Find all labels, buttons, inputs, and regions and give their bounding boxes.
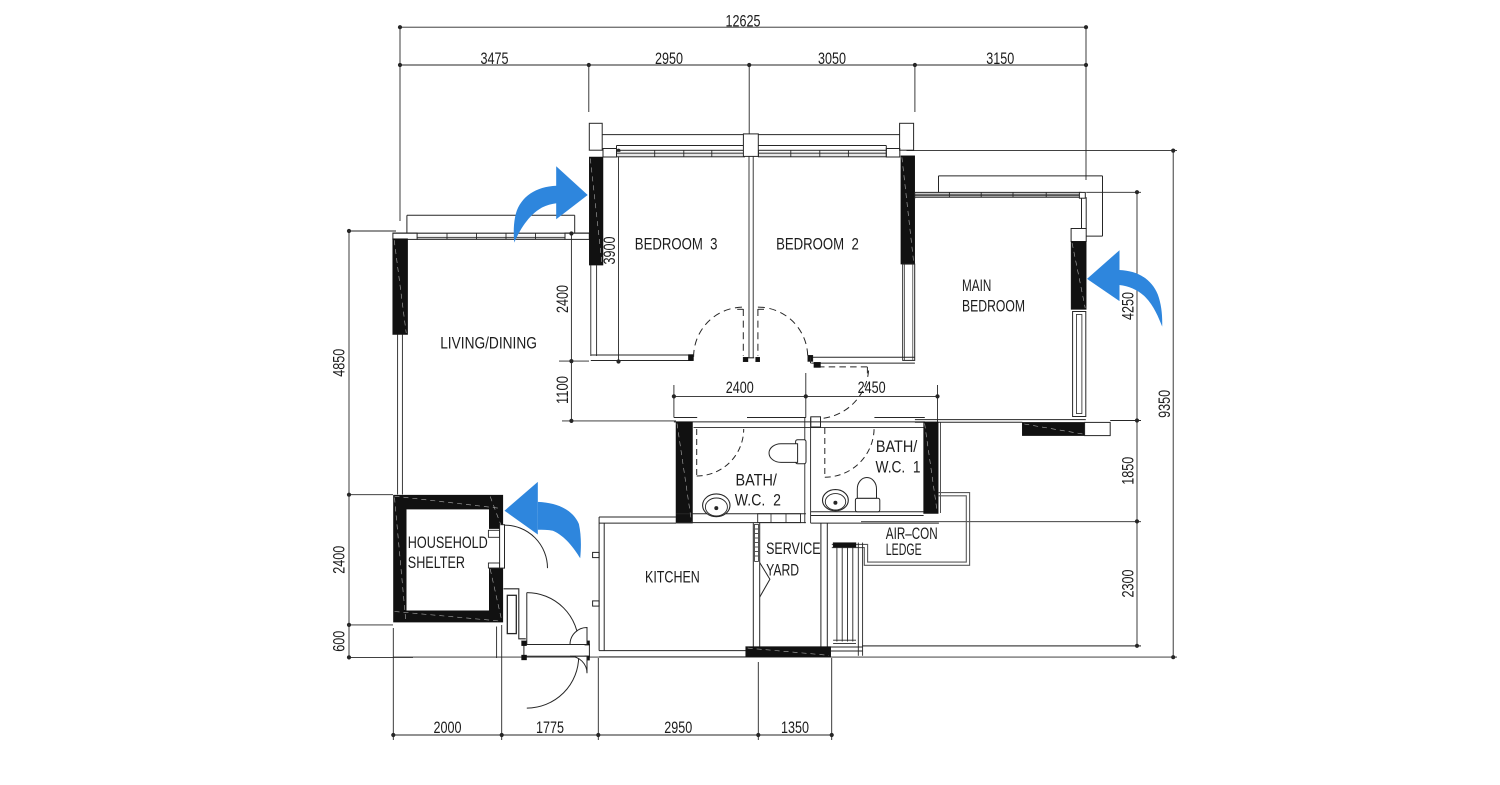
svg-text:BEDROOM 2: BEDROOM 2 bbox=[776, 235, 859, 253]
svg-text:3050: 3050 bbox=[818, 50, 846, 68]
svg-text:2400: 2400 bbox=[331, 546, 349, 574]
svg-text:W.C. 1: W.C. 1 bbox=[876, 459, 921, 477]
svg-text:HOUSEHOLD: HOUSEHOLD bbox=[408, 534, 488, 552]
svg-text:4850: 4850 bbox=[331, 349, 349, 377]
svg-text:2400: 2400 bbox=[554, 285, 572, 313]
svg-text:LIVING/DINING: LIVING/DINING bbox=[440, 334, 537, 352]
svg-text:2450: 2450 bbox=[858, 379, 886, 397]
svg-text:BEDROOM: BEDROOM bbox=[962, 298, 1025, 316]
svg-text:1350: 1350 bbox=[781, 719, 809, 737]
svg-text:9350: 9350 bbox=[1156, 390, 1174, 418]
svg-text:600: 600 bbox=[331, 631, 349, 652]
svg-text:3475: 3475 bbox=[481, 50, 509, 68]
svg-text:BEDROOM 3: BEDROOM 3 bbox=[635, 235, 718, 253]
svg-text:2950: 2950 bbox=[655, 50, 683, 68]
svg-text:BATH/: BATH/ bbox=[736, 472, 778, 490]
svg-text:2400: 2400 bbox=[726, 379, 754, 397]
svg-text:1850: 1850 bbox=[1120, 457, 1138, 485]
svg-text:2300: 2300 bbox=[1120, 570, 1138, 598]
svg-text:1775: 1775 bbox=[536, 719, 564, 737]
svg-text:SERVICE: SERVICE bbox=[766, 540, 821, 558]
svg-text:3150: 3150 bbox=[986, 50, 1014, 68]
svg-text:KITCHEN: KITCHEN bbox=[645, 569, 700, 587]
svg-text:W.C. 2: W.C. 2 bbox=[735, 492, 781, 510]
svg-text:3900: 3900 bbox=[601, 237, 619, 265]
svg-text:2950: 2950 bbox=[664, 719, 692, 737]
svg-text:MAIN: MAIN bbox=[962, 277, 991, 295]
svg-text:2000: 2000 bbox=[434, 719, 462, 737]
svg-text:YARD: YARD bbox=[766, 562, 799, 580]
svg-text:LEDGE: LEDGE bbox=[886, 541, 922, 559]
svg-text:1100: 1100 bbox=[554, 376, 572, 404]
svg-text:4250: 4250 bbox=[1120, 292, 1138, 320]
svg-text:12625: 12625 bbox=[726, 12, 761, 30]
svg-text:BATH/: BATH/ bbox=[876, 438, 918, 456]
svg-text:SHELTER: SHELTER bbox=[408, 554, 465, 572]
